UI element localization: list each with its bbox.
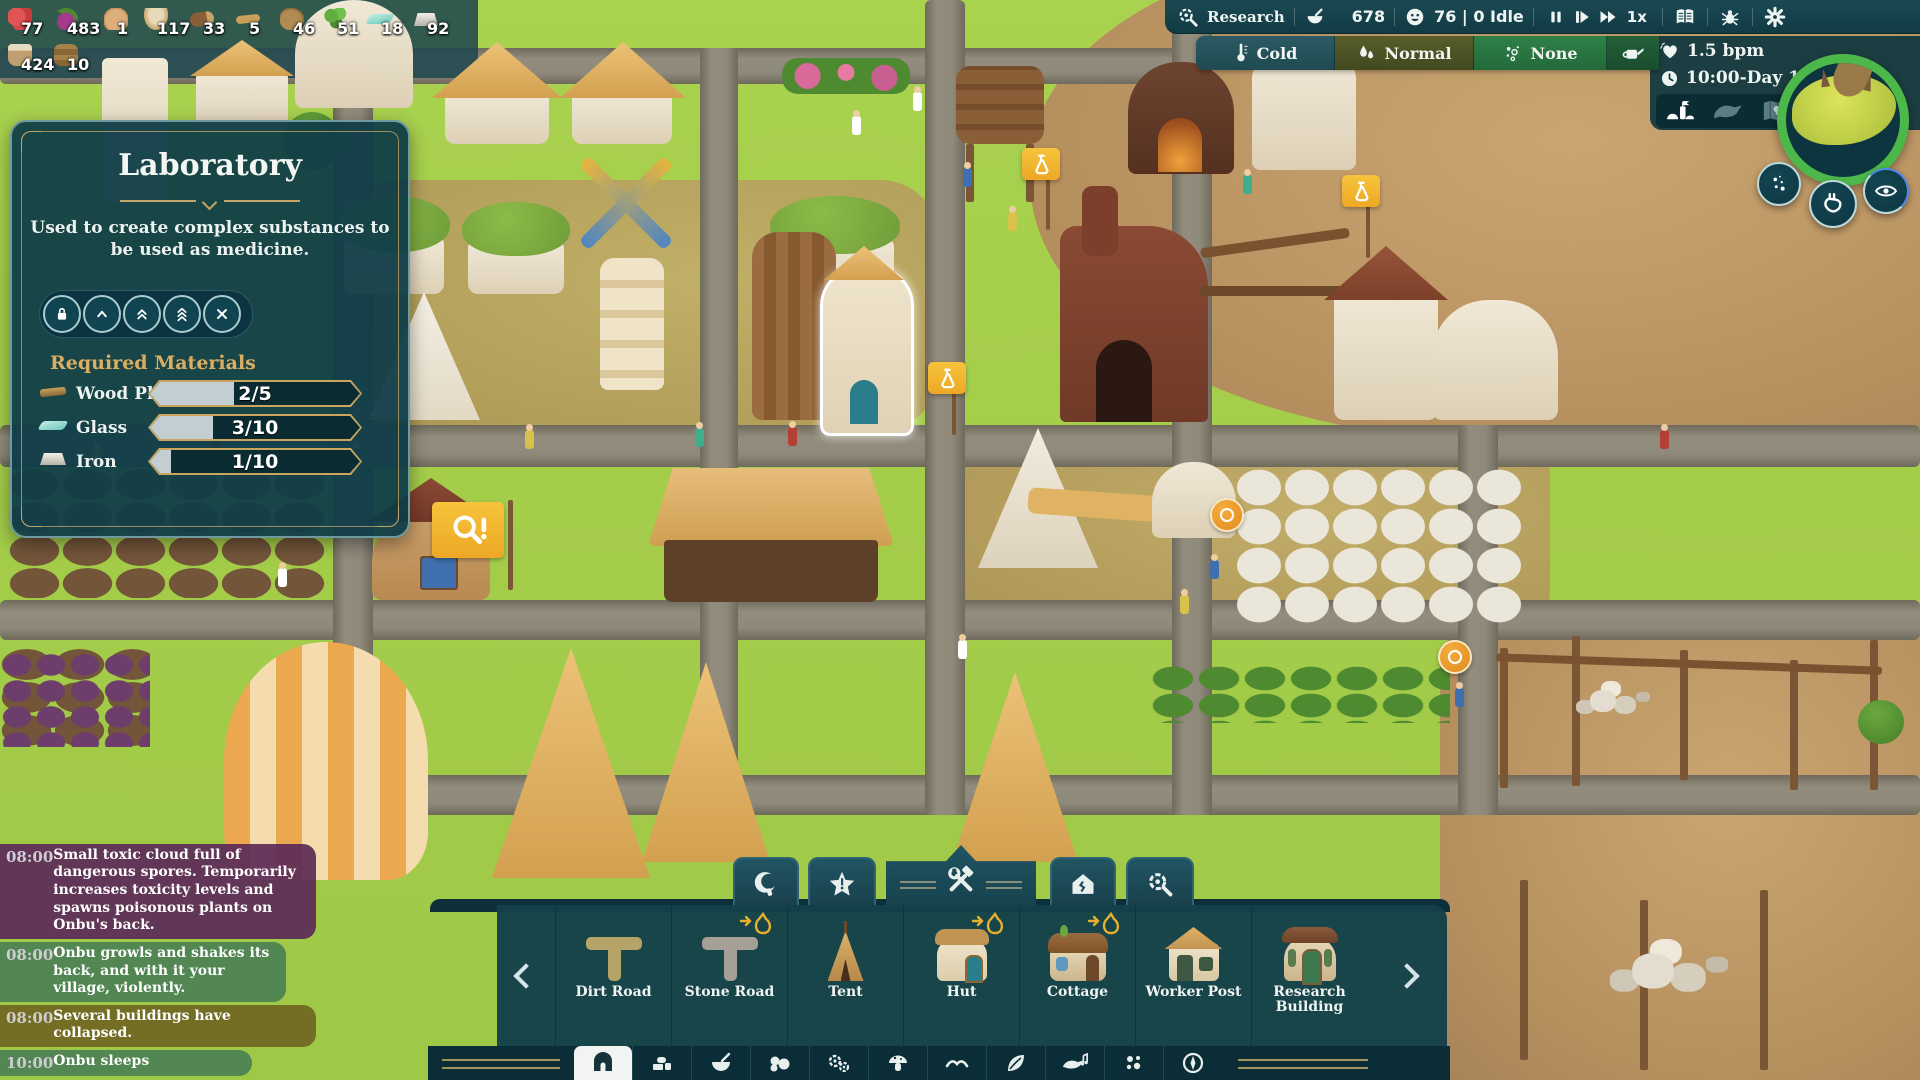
event-time: 08:00: [6, 1008, 53, 1043]
priority-low-button[interactable]: [83, 295, 121, 333]
building-right-house: [1334, 292, 1438, 420]
villager: [963, 168, 972, 187]
building-straw-house: [572, 92, 672, 144]
build-item-cottage[interactable]: Cottage: [1019, 905, 1135, 1046]
investigate-flag[interactable]: [432, 502, 504, 558]
flask-icon: [936, 367, 958, 389]
progress-bar-iron: 1/10: [148, 448, 362, 475]
bricks-kiln-icon: [650, 1051, 674, 1075]
spores-overlay-button[interactable]: [1757, 162, 1801, 206]
kiln-arch: [1096, 340, 1152, 422]
scaffold-pole: [1520, 880, 1528, 1060]
flower-hedge: [782, 58, 910, 94]
crop-rows: [0, 652, 150, 747]
category-farming[interactable]: [868, 1046, 927, 1080]
resource-wood-plank: 5: [236, 8, 280, 42]
scroll-left-button[interactable]: [497, 905, 555, 1046]
corner-ornament: [21, 506, 42, 527]
bird-icon: [944, 1052, 970, 1074]
top-status-bar: Research 678 76 | 0 Idle 1x: [1165, 0, 1920, 34]
chevron-up-icon: [93, 305, 111, 323]
resource-berries: 77: [8, 8, 52, 42]
category-production[interactable]: [632, 1046, 691, 1080]
view-toggle-row: [1656, 94, 1796, 128]
resource-water-barrel: 10: [54, 44, 98, 78]
divider: [1533, 8, 1534, 26]
research-building-icon: [1275, 915, 1345, 981]
cost-bag-icon: [739, 911, 773, 941]
research-flag[interactable]: [1022, 148, 1060, 180]
heart-rate-value: 1.5 bpm: [1687, 41, 1764, 61]
clock-icon: [1660, 69, 1679, 88]
villager: [1243, 175, 1252, 194]
scaffold-bridge: [1200, 286, 1350, 296]
event-message: Several buildings have collapsed.: [53, 1008, 306, 1043]
kiln-chimney: [1082, 186, 1118, 256]
task-marker[interactable]: [1438, 640, 1472, 674]
compass-icon: [1181, 1051, 1205, 1075]
sickle-icon: [753, 871, 779, 897]
resource-clay-pot: 424: [8, 44, 52, 78]
villager: [1455, 688, 1464, 707]
resource-bread: 1: [104, 8, 148, 42]
event-log: 08:00 Small toxic cloud full of dangerou…: [0, 844, 330, 1076]
rock-pile: [1590, 690, 1616, 712]
population-smiley-icon: [1404, 6, 1426, 28]
task-marker[interactable]: [1210, 498, 1244, 532]
event-time: 08:00: [6, 945, 53, 998]
resource-iron: 92: [414, 8, 458, 42]
fast-forward-button[interactable]: [1595, 4, 1621, 30]
play-button[interactable]: [1569, 4, 1595, 30]
building-straw-cone-bottom: [492, 648, 650, 878]
tarp-grid: [1235, 468, 1525, 624]
build-category-bar: [428, 1046, 1450, 1080]
tab-demolish[interactable]: [1050, 857, 1116, 909]
divider: [1394, 8, 1395, 26]
dirt-road-icon: [579, 915, 649, 981]
double-chevron-up-icon: [133, 305, 151, 323]
house-crack-icon: [1069, 870, 1097, 898]
divider: [1752, 8, 1753, 26]
building-twin-towers: [1252, 58, 1356, 170]
gears-icon: [826, 1051, 852, 1075]
priority-medium-button[interactable]: [123, 295, 161, 333]
toxicity-segment[interactable]: None: [1474, 36, 1607, 70]
material-row-iron: Iron 1/10: [40, 448, 380, 475]
encyclopedia-button[interactable]: [1672, 4, 1698, 30]
event-entry[interactable]: 08:00 Small toxic cloud full of dangerou…: [0, 844, 316, 939]
villager: [1660, 430, 1669, 449]
onbu-minimap[interactable]: [1777, 54, 1909, 186]
progress-bar-glass: 3/10: [148, 414, 362, 441]
category-onbu-care[interactable]: [1045, 1046, 1104, 1080]
onbu-eye-button[interactable]: [1863, 168, 1909, 214]
building-straw-cone-bottom: [952, 672, 1078, 862]
flask-icon: [1030, 153, 1052, 175]
hammer-wrench-icon: [945, 864, 977, 896]
resource-glass: 18: [368, 8, 412, 42]
stones-icon: [767, 1051, 793, 1075]
chevron-left-icon: [513, 963, 538, 988]
material-row-wood-plank: Wood Plank 2/5: [40, 380, 380, 407]
heart-rate-row: 1.5 bpm: [1660, 41, 1764, 61]
category-resources[interactable]: [750, 1046, 809, 1080]
event-message: Onbu sleeps: [53, 1053, 149, 1072]
tree: [1858, 700, 1904, 744]
spores-icon: [1502, 43, 1522, 63]
onbu-view-icon[interactable]: [1712, 100, 1744, 122]
toxicity-label: None: [1530, 44, 1577, 63]
iron-ingot-icon: [40, 453, 66, 465]
water-drops-icon: [1356, 43, 1376, 63]
build-item-dirt-road[interactable]: Dirt Road: [555, 905, 671, 1046]
building-barn-body: [664, 540, 878, 602]
research-points: 678: [1352, 7, 1385, 26]
building-highlighted-lab-door: [850, 380, 878, 424]
villager: [1008, 212, 1017, 231]
tab-inspect[interactable]: [1126, 857, 1194, 909]
category-scouting[interactable]: [1163, 1046, 1222, 1080]
scroll-right-button[interactable]: [1367, 905, 1447, 1046]
event-entry[interactable]: 10:00 Onbu sleeps: [0, 1050, 252, 1076]
tent-icon: [811, 915, 881, 981]
oven-glow: [1158, 118, 1202, 172]
settings-gear-button[interactable]: [1762, 4, 1788, 30]
build-item-worker-post[interactable]: Worker Post: [1135, 905, 1251, 1046]
research-points-bowl-icon: [1304, 6, 1326, 28]
villager: [1180, 595, 1189, 614]
sign-board: [420, 556, 458, 590]
build-item-stone-road[interactable]: Stone Road: [671, 905, 787, 1046]
game-screen: { "resources": { "row1": [ {"name":"berr…: [0, 0, 1920, 1080]
scaffold-pole: [1500, 648, 1508, 788]
spores-dots-icon: [1768, 173, 1790, 195]
divider: [1294, 8, 1295, 26]
resource-beetroot: 483: [54, 8, 98, 42]
villager: [278, 568, 287, 587]
resource-wood-log: 33: [190, 8, 234, 42]
resource-herbs: 51: [324, 8, 368, 42]
event-message: Onbu growls and shakes its back, and wit…: [53, 945, 276, 998]
divider: [1707, 8, 1708, 26]
panel-description: Used to create complex substances to be …: [30, 218, 390, 262]
research-icon: [1177, 6, 1199, 28]
scaffold-pole: [1760, 890, 1768, 1070]
corner-ornament: [378, 506, 399, 527]
villager: [1210, 560, 1219, 579]
star-alert-icon: [828, 870, 856, 898]
heart-rate-icon: [1660, 42, 1680, 60]
humidity-label: Normal: [1384, 44, 1451, 63]
event-entry[interactable]: 08:00 Several buildings have collapsed.: [0, 1005, 316, 1047]
progress-bar-wood-plank: 2/5: [148, 380, 362, 407]
divider: [1662, 8, 1663, 26]
villager: [913, 92, 922, 111]
material-row-glass: Glass 3/10: [40, 414, 380, 441]
research-label[interactable]: Research: [1207, 8, 1285, 26]
villager: [788, 427, 797, 446]
pause-button[interactable]: [1543, 4, 1569, 30]
category-food[interactable]: [691, 1046, 750, 1080]
watering-can-icon: [1620, 43, 1646, 63]
lock-button[interactable]: [43, 295, 81, 333]
event-entry[interactable]: 08:00 Onbu growls and shakes its back, a…: [0, 942, 286, 1002]
worker-post-icon: [1159, 915, 1229, 981]
villager: [695, 428, 704, 447]
required-materials-header: Required Materials: [50, 352, 256, 374]
event-message: Small toxic cloud full of dangerous spor…: [53, 847, 306, 935]
bug-report-button[interactable]: [1717, 4, 1743, 30]
temperature-label: Cold: [1257, 44, 1298, 63]
wood-plank-icon: [40, 387, 67, 398]
build-item-tent[interactable]: Tent: [787, 905, 903, 1046]
decorative-lines: [442, 1057, 560, 1069]
flask-icon: [1350, 180, 1372, 202]
category-nature[interactable]: [986, 1046, 1045, 1080]
building-straw-cone-bottom: [642, 662, 770, 862]
mushroom-icon: [886, 1051, 910, 1075]
stomach-icon: [1820, 191, 1846, 217]
tab-decor-lines: [900, 877, 936, 889]
weather-bar: Cold Normal None: [1196, 36, 1659, 70]
category-animals[interactable]: [927, 1046, 986, 1080]
scaffold-pole: [1790, 660, 1798, 790]
close-icon: [214, 306, 230, 322]
build-menu-panel: Dirt Road Stone Road Tent: [497, 905, 1447, 1046]
event-time: 08:00: [6, 847, 53, 935]
resource-bar: 77 483 1 117 33 5 46 51 18 92 424 1: [0, 0, 480, 80]
windmill-body: [600, 258, 664, 390]
title-divider: [120, 196, 300, 206]
temperature-segment[interactable]: Cold: [1196, 36, 1335, 70]
rock-pile: [1632, 953, 1674, 988]
leaf-icon: [1004, 1051, 1028, 1075]
thermometer-icon: [1233, 43, 1249, 63]
cost-bag-icon: [1087, 911, 1121, 941]
population-count: 76 | 0 Idle: [1434, 7, 1524, 26]
scaffold-pole: [1680, 650, 1688, 780]
water-tower-tank: [956, 66, 1044, 144]
building-barn-roof: [648, 468, 894, 546]
research-flag[interactable]: [928, 362, 966, 394]
category-spores[interactable]: [1104, 1046, 1163, 1080]
cottage-icon: [1043, 915, 1113, 981]
house-icon: [591, 1051, 615, 1075]
investigate-flag-pole: [508, 500, 513, 590]
building-right-dome: [1432, 300, 1558, 420]
tab-decor-lines: [986, 877, 1022, 889]
build-item-hut[interactable]: Hut: [903, 905, 1019, 1046]
cancel-button[interactable]: [203, 295, 241, 333]
tab-special[interactable]: [808, 857, 876, 909]
resource-roots: 46: [280, 8, 324, 42]
magnifier-alert-icon: [448, 510, 488, 550]
onbu-stomach-button[interactable]: [1809, 180, 1857, 228]
villager: [525, 430, 534, 449]
building-action-bar: [39, 290, 253, 338]
research-flag[interactable]: [1342, 175, 1380, 207]
villager: [958, 640, 967, 659]
cost-bag-icon: [971, 911, 1005, 941]
bowl-spoon-icon: [709, 1051, 733, 1075]
building-green-dome-roof: [462, 202, 570, 256]
magnifier-gear-icon: [1146, 870, 1174, 898]
triple-chevron-up-icon: [173, 305, 191, 323]
building-straw-house: [445, 92, 549, 144]
laboratory-tooltip-panel: Laboratory Used to create complex substa…: [10, 120, 410, 538]
priority-high-button[interactable]: [163, 295, 201, 333]
humidity-segment[interactable]: Normal: [1335, 36, 1474, 70]
glass-icon: [37, 421, 68, 430]
decorative-lines: [1238, 1057, 1368, 1069]
build-item-research-building[interactable]: Research Building: [1251, 905, 1367, 1046]
tab-harvest[interactable]: [733, 857, 799, 909]
speed-indicator: 1x: [1627, 8, 1647, 26]
lock-icon: [53, 305, 71, 323]
resource-porridge: 117: [144, 8, 188, 42]
village-view-icon[interactable]: [1665, 99, 1695, 123]
event-time: 10:00: [6, 1053, 53, 1072]
panel-title: Laboratory: [12, 148, 408, 183]
chevron-right-icon: [1394, 963, 1419, 988]
eye-icon: [1874, 179, 1898, 203]
spore-cluster-icon: [1122, 1051, 1146, 1075]
bush-rows: [1150, 665, 1450, 723]
hut-icon: [927, 915, 997, 981]
onbu-music-icon: [1061, 1051, 1089, 1075]
category-housing[interactable]: [574, 1046, 632, 1080]
category-industry[interactable]: [809, 1046, 868, 1080]
villager: [852, 116, 861, 135]
watering-segment[interactable]: [1607, 36, 1659, 70]
stone-road-icon: [695, 915, 765, 981]
